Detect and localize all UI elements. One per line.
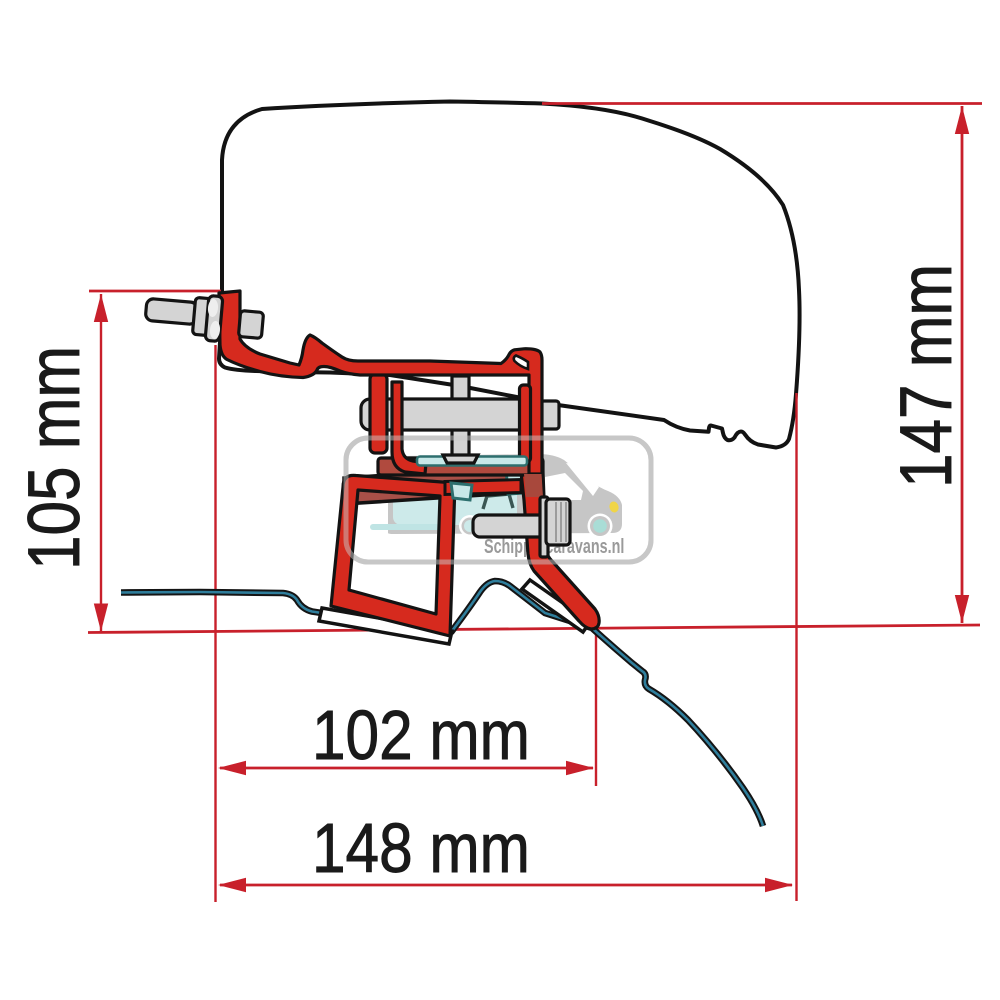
- svg-text:102 mm: 102 mm: [312, 696, 530, 774]
- svg-text:105 mm: 105 mm: [14, 346, 95, 570]
- svg-text:148 mm: 148 mm: [312, 809, 530, 887]
- svg-text:147 mm: 147 mm: [886, 264, 967, 488]
